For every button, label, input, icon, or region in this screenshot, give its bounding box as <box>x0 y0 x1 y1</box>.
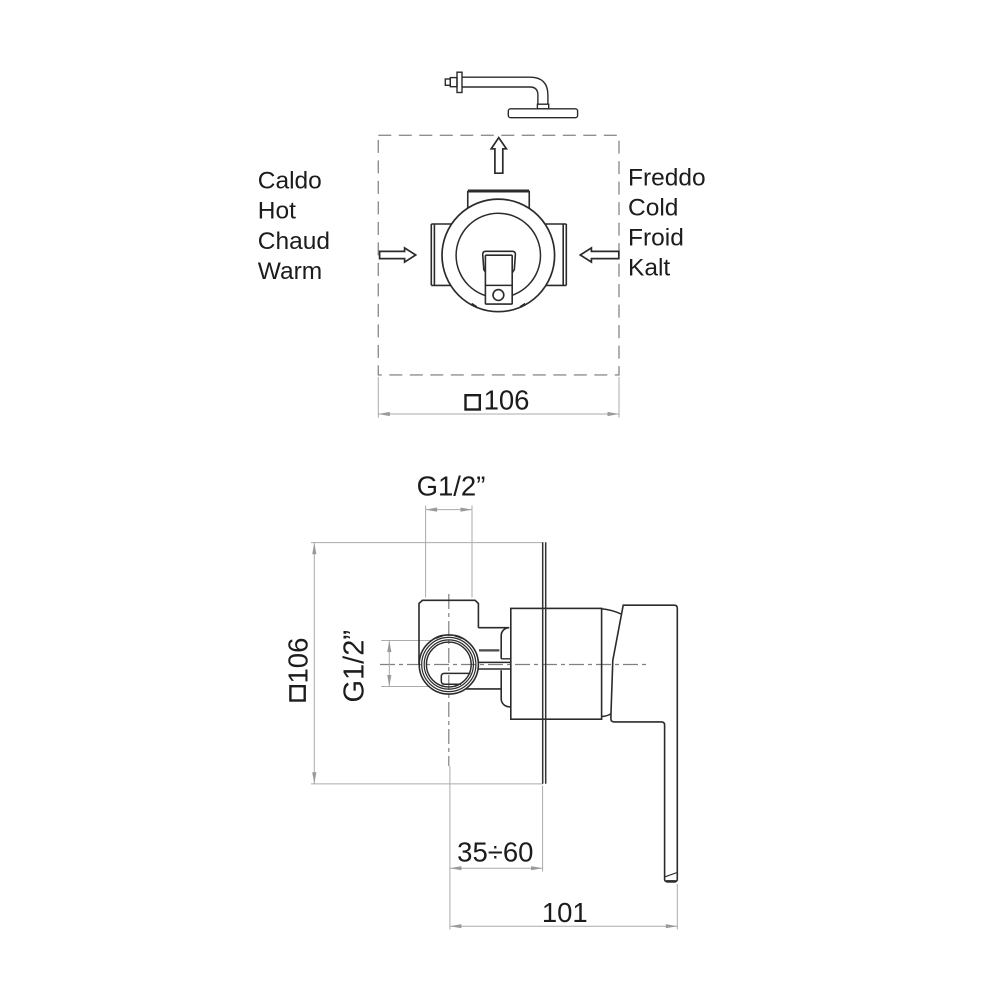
svg-text:106: 106 <box>283 638 314 684</box>
svg-text:Froid: Froid <box>628 225 684 252</box>
svg-text:35÷60: 35÷60 <box>457 837 533 868</box>
svg-text:G1/2”: G1/2” <box>339 630 371 703</box>
svg-text:Chaud: Chaud <box>258 228 330 255</box>
svg-text:Hot: Hot <box>258 198 296 225</box>
svg-text:106: 106 <box>484 385 530 416</box>
svg-text:Kalt: Kalt <box>628 255 670 282</box>
svg-text:Warm: Warm <box>258 258 322 285</box>
svg-text:G1/2”: G1/2” <box>417 471 486 502</box>
svg-text:Freddo: Freddo <box>628 165 706 192</box>
svg-text:101: 101 <box>542 897 588 928</box>
svg-text:Caldo: Caldo <box>258 167 322 194</box>
svg-text:Cold: Cold <box>628 195 678 222</box>
